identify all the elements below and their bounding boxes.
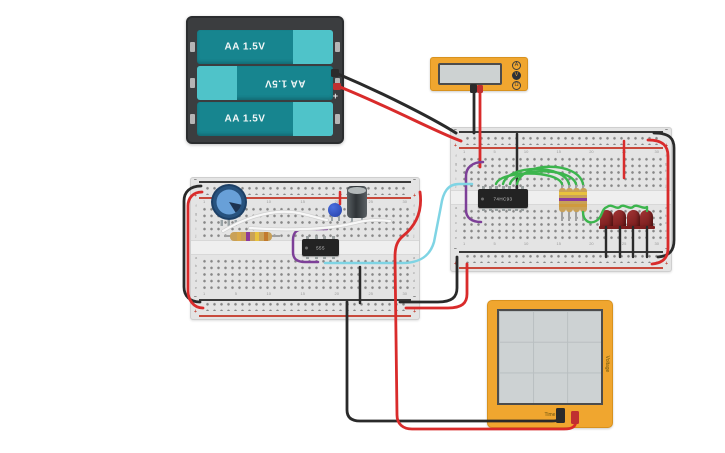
- rail-plus-label: +: [665, 262, 668, 267]
- battery-terminal-plus: +: [333, 92, 338, 100]
- oscilloscope-screen: [497, 309, 603, 405]
- led-red-4[interactable]: [640, 210, 653, 229]
- multimeter-mode-3[interactable]: Ω: [512, 81, 521, 90]
- row-letters: abcde: [663, 206, 669, 240]
- rail-minus-label: −: [194, 295, 197, 300]
- rail-plus-label: +: [194, 194, 197, 199]
- battery-cell-2[interactable]: AA 1.5V: [197, 66, 333, 100]
- rail-minus-label: −: [665, 247, 668, 252]
- oscilloscope-time-label: Time: [488, 412, 612, 418]
- resistor-horizontal[interactable]: [230, 232, 272, 241]
- rail-plus-label: +: [194, 310, 197, 315]
- battery-terminal-nub: [190, 42, 195, 52]
- rail-plus-label: +: [413, 194, 416, 199]
- battery-cell-label: AA 1.5V: [197, 42, 293, 53]
- rail-line-positive-bottom: [199, 315, 411, 317]
- battery-wire-red[interactable]: [340, 87, 461, 141]
- ceramic-capacitor[interactable]: [328, 203, 342, 217]
- rail-minus-label: −: [454, 128, 457, 133]
- resistor-4[interactable]: [580, 188, 587, 212]
- chip-label: 74HC93: [478, 196, 528, 201]
- battery-terminal-nub: [190, 78, 195, 88]
- column-numbers-bottom: 151015202530: [203, 291, 407, 296]
- battery-terminal-nub: [335, 78, 340, 88]
- resistor-2[interactable]: [566, 188, 573, 212]
- resistor-1[interactable]: [559, 188, 566, 212]
- resistor-3[interactable]: [573, 188, 580, 212]
- row-letters: fghij: [453, 154, 459, 188]
- row-letters: fghij: [193, 204, 199, 238]
- led-red-2[interactable]: [613, 210, 626, 229]
- rail-minus-label: −: [413, 295, 416, 300]
- multimeter-screen: [438, 63, 502, 85]
- multimeter-mode-2[interactable]: V: [512, 71, 521, 80]
- potentiometer[interactable]: [207, 180, 251, 228]
- rail-holes-bottom: [462, 252, 660, 263]
- rail-minus-label: −: [665, 128, 668, 133]
- oscilloscope-voltage-label: Voltage: [604, 356, 610, 373]
- rail-holes-bottom: [202, 300, 408, 311]
- column-numbers-top: 151015202530: [463, 149, 659, 154]
- battery-terminal-nub: [335, 42, 340, 52]
- battery-terminal-nub: [335, 114, 340, 124]
- multimeter[interactable]: AVΩ: [430, 57, 528, 91]
- battery-cell-3[interactable]: AA 1.5V: [197, 102, 333, 136]
- rail-plus-label: +: [454, 144, 457, 149]
- rail-minus-label: −: [194, 178, 197, 183]
- oscilloscope[interactable]: Time Voltage: [487, 300, 613, 428]
- row-letters: abcde: [453, 206, 459, 240]
- multimeter-mode-1[interactable]: A: [512, 61, 521, 70]
- battery-cell-label: AA 1.5V: [237, 78, 333, 89]
- chip-label: 555: [302, 245, 339, 250]
- row-letters: abcde: [193, 256, 199, 290]
- battery-terminal-nub: [190, 114, 195, 124]
- rail-minus-label: −: [454, 247, 457, 252]
- row-letters: abcde: [411, 256, 417, 290]
- rail-line-negative-top: [459, 131, 663, 133]
- row-letters: fghij: [663, 154, 669, 188]
- battery-cell-label: AA 1.5V: [197, 114, 293, 125]
- rail-line-positive-bottom: [459, 267, 663, 269]
- rail-plus-label: +: [665, 144, 668, 149]
- row-letters: fghij: [411, 204, 417, 238]
- battery-terminal-minus: −: [333, 70, 338, 78]
- counter-74hc93-chip[interactable]: 74HC93: [478, 189, 528, 208]
- battery-cell-1[interactable]: AA 1.5V: [197, 30, 333, 64]
- rail-holes-top: [462, 134, 660, 145]
- electrolytic-capacitor[interactable]: [347, 186, 367, 218]
- column-numbers-bottom: 151015202530: [463, 241, 659, 246]
- timer-555-chip[interactable]: 555: [302, 239, 339, 256]
- hole-grid-bottom: [199, 257, 411, 290]
- rail-plus-label: +: [454, 262, 457, 267]
- rail-minus-label: −: [413, 178, 416, 183]
- rail-plus-label: +: [413, 310, 416, 315]
- battery-pack[interactable]: − + AA 1.5VAA 1.5VAA 1.5V: [186, 16, 344, 144]
